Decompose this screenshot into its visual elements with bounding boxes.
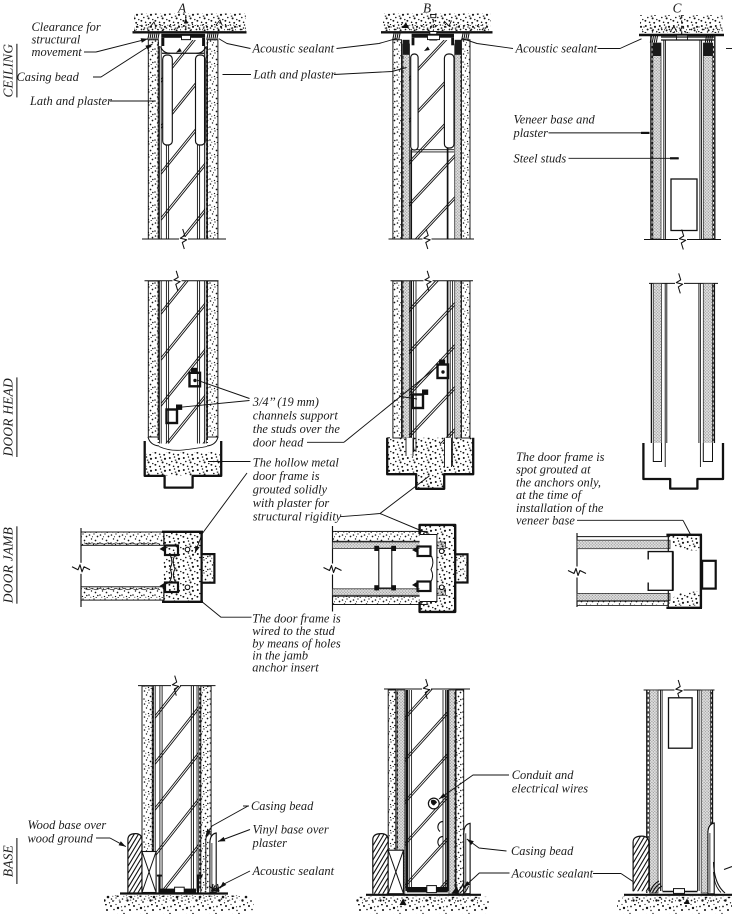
- svg-text:channels support: channels support: [253, 408, 339, 422]
- svg-text:A: A: [177, 1, 187, 16]
- svg-text:B: B: [423, 1, 431, 16]
- svg-text:Steel studs: Steel studs: [514, 151, 567, 165]
- svg-text:Acoustic sealant: Acoustic sealant: [252, 864, 335, 878]
- svg-text:DOOR JAMB: DOOR JAMB: [0, 527, 15, 604]
- svg-text:CEILING: CEILING: [0, 44, 15, 98]
- svg-text:Lath and plaster: Lath and plaster: [253, 67, 336, 81]
- svg-text:Casing bead: Casing bead: [511, 844, 574, 858]
- svg-text:movement: movement: [32, 45, 83, 59]
- svg-text:Vinyl base over: Vinyl base over: [253, 823, 329, 837]
- svg-text:3/4’’ (19 mm): 3/4’’ (19 mm): [252, 395, 319, 409]
- svg-text:The hollow metal: The hollow metal: [253, 456, 340, 470]
- svg-text:electrical wires: electrical wires: [512, 782, 588, 796]
- svg-text:the studs over the: the studs over the: [253, 422, 341, 436]
- svg-text:structural rigidity: structural rigidity: [253, 510, 342, 524]
- svg-text:DOOR HEAD: DOOR HEAD: [0, 378, 15, 458]
- svg-text:anchor insert: anchor insert: [252, 661, 319, 675]
- svg-text:Veneer base and: Veneer base and: [514, 113, 596, 127]
- svg-text:Acoustic sealant: Acoustic sealant: [511, 867, 594, 881]
- svg-text:Lath and plaster: Lath and plaster: [29, 94, 112, 108]
- svg-text:BASE: BASE: [0, 845, 15, 877]
- svg-text:door frame is: door frame is: [253, 469, 320, 483]
- svg-text:Casing bead: Casing bead: [251, 799, 314, 813]
- svg-text:with plaster for: with plaster for: [253, 496, 330, 510]
- svg-text:Wood base over: Wood base over: [28, 818, 107, 832]
- svg-text:plaster: plaster: [513, 126, 549, 140]
- svg-text:C: C: [673, 1, 682, 16]
- svg-text:grouted solidly: grouted solidly: [253, 483, 328, 497]
- svg-text:Casing bead: Casing bead: [17, 70, 80, 84]
- svg-text:Acoustic sealant: Acoustic sealant: [515, 41, 598, 55]
- svg-text:plaster: plaster: [252, 836, 288, 850]
- svg-text:veneer base: veneer base: [516, 514, 575, 528]
- svg-text:wood ground: wood ground: [28, 832, 94, 846]
- svg-text:Conduit and: Conduit and: [512, 768, 574, 782]
- svg-text:Acoustic sealant: Acoustic sealant: [252, 41, 335, 55]
- svg-text:door head: door head: [253, 435, 304, 449]
